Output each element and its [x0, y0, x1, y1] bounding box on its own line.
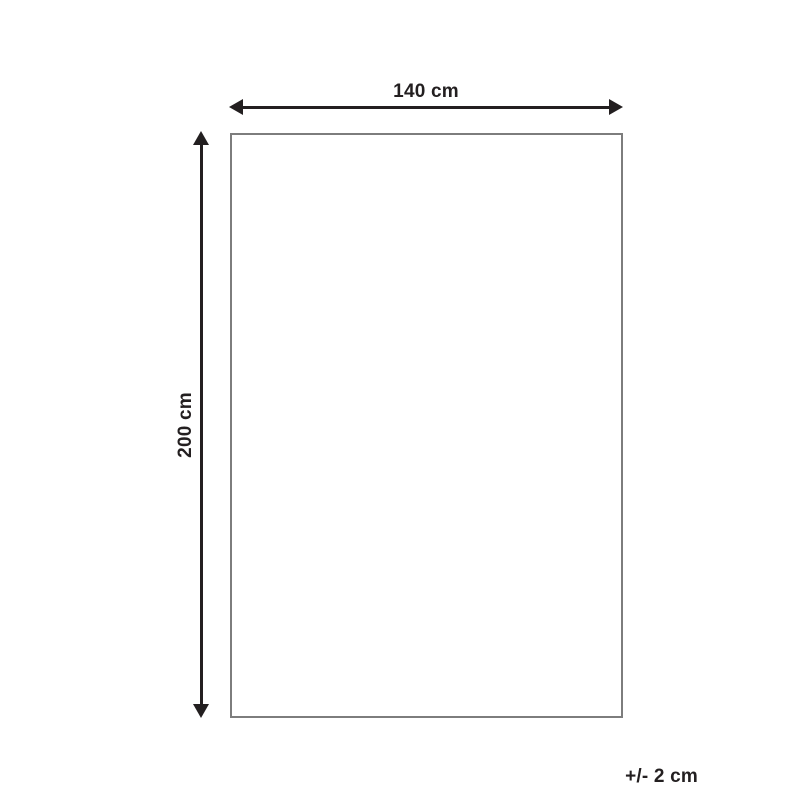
arrowhead-down-icon — [193, 704, 209, 718]
tolerance-label: +/- 2 cm — [598, 766, 698, 788]
dimension-diagram-canvas: 140 cm 200 cm +/- 2 cm — [0, 0, 800, 800]
width-arrow-line — [240, 106, 612, 109]
arrowhead-right-icon — [609, 99, 623, 115]
product-outline-rectangle — [230, 133, 623, 718]
height-arrow-line — [200, 142, 203, 707]
height-dimension-arrow — [193, 131, 209, 718]
width-dimension-arrow — [229, 99, 623, 115]
